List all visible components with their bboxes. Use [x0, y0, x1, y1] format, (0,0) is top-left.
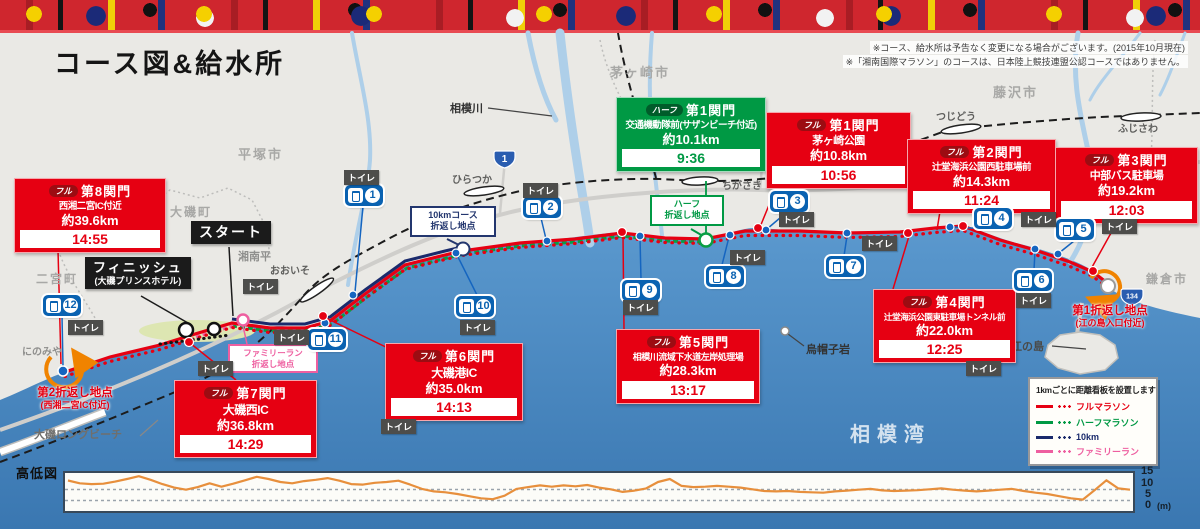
water-cup-icon — [977, 211, 992, 226]
area-label-ninomiya-kana: にのみや — [22, 343, 62, 358]
area-label-sagami-bay: 相模湾 — [850, 418, 931, 447]
finish-marker: フィニッシュ (大磯プリンスホテル) — [85, 257, 191, 289]
checkpoint-box-full-3: フル第3関門 中部バス駐車場 約19.2km 12:03 — [1055, 147, 1198, 224]
checkpoint-box-full-2: フル第2関門 辻堂海浜公園西駐車場前 約14.3km 11:24 — [907, 139, 1056, 214]
water-station-7: 7 — [826, 256, 864, 277]
water-cup-icon — [1017, 273, 1032, 288]
city-label-fujisawa: 藤沢市 — [993, 82, 1038, 101]
course-type-badge: フル — [49, 185, 78, 197]
turnaround-box-family: ファミリーラン折返し地点 — [228, 344, 318, 373]
checkpoint-box-half-1: ハーフ第1関門 交通機動隊前(サザンビーチ付近) 約10.1km 9:36 — [616, 97, 766, 172]
toilet-label: トイレ — [1021, 212, 1056, 227]
checkpoint-box-full-8: フル第8関門 西湘二宮IC付近 約39.6km 14:55 — [14, 178, 166, 253]
legend-item-10km: 10km — [1036, 432, 1150, 442]
elevation-plot — [65, 473, 1133, 511]
toilet-label: トイレ — [730, 250, 765, 265]
checkpoint-box-full-5: フル第5関門 相模川流域下水道左岸処理場 約28.3km 13:17 — [616, 329, 760, 404]
water-cup-icon — [46, 298, 61, 313]
start-marker: スタート — [191, 221, 271, 244]
water-cup-icon — [1059, 222, 1074, 237]
cutoff-time: 12:25 — [879, 340, 1010, 358]
elevation-tick-15: 15 — [1141, 465, 1153, 477]
water-station-11: 11 — [308, 329, 346, 350]
toilet-label: トイレ — [862, 236, 897, 251]
svg-text:134: 134 — [1126, 294, 1138, 301]
town-label-ninomiya: 二宮町 — [36, 270, 78, 287]
water-cup-icon — [311, 332, 326, 347]
elevation-chart — [63, 471, 1135, 513]
toilet-label: トイレ — [779, 212, 814, 227]
line-swatch — [1036, 405, 1053, 408]
toilet-label: トイレ — [1016, 293, 1051, 308]
city-label-chigasaki: 茅ヶ崎市 — [610, 62, 670, 81]
legend-item-half: ハーフマラソン — [1036, 416, 1150, 429]
legend: 1kmごとに距離看板を設置します フルマラソン ハーフマラソン 10km ファミ… — [1028, 377, 1158, 466]
course-type-badge: フル — [1085, 154, 1114, 166]
water-station-8: 8 — [706, 266, 744, 287]
water-cup-icon — [625, 283, 640, 298]
cutoff-time: 13:17 — [622, 381, 754, 399]
course-type-badge: フル — [647, 336, 676, 348]
water-cup-icon — [829, 259, 844, 274]
dots-swatch — [1057, 421, 1072, 424]
water-cup-icon — [709, 269, 724, 284]
water-station-4: 4 — [974, 208, 1012, 229]
water-station-1: 1 — [345, 185, 383, 206]
water-cup-icon — [459, 299, 474, 314]
water-station-10: 10 — [456, 296, 494, 317]
toilet-label: トイレ — [381, 419, 416, 434]
turnaround-box-10km: 10kmコース折返し地点 — [410, 206, 496, 237]
station-label-oiso: おおいそ — [270, 262, 310, 277]
water-station-5: 5 — [1056, 219, 1094, 240]
toilet-label: トイレ — [243, 279, 278, 294]
dots-swatch — [1057, 436, 1072, 439]
checkpoint-box-full-6: フル第6関門 大磯港IC 約35.0km 14:13 — [385, 343, 523, 421]
area-label-shonandaira: 湘南平 — [238, 248, 271, 264]
checkpoint-box-full-4: フル第4関門 辻堂海浜公園東駐車場トンネル前 約22.0km 12:25 — [873, 289, 1016, 363]
toilet-label: トイレ — [274, 330, 309, 345]
note-line-1: ※コース、給水所は予告なく変更になる場合がございます。(2015年10月現在) — [870, 41, 1188, 54]
course-type-badge: フル — [204, 387, 233, 399]
elevation-tick-0: 0 — [1145, 499, 1151, 511]
line-swatch — [1036, 436, 1053, 439]
turnaround-label-2: 第2折返し地点(西湘二宮IC付近) — [10, 386, 140, 412]
course-type-badge: フル — [797, 119, 826, 131]
city-label-kamakura: 鎌倉市 — [1146, 270, 1188, 287]
svg-text:1: 1 — [502, 154, 508, 165]
water-cup-icon — [773, 194, 788, 209]
elevation-line — [68, 476, 1130, 499]
dots-swatch — [1057, 405, 1072, 408]
toilet-label: トイレ — [344, 170, 379, 185]
checkpoint-box-full-1: フル第1関門 茅ヶ崎公園 約10.8km 10:56 — [766, 112, 911, 189]
note-line-2: ※「湘南国際マラソン」のコースは、日本陸上競技連盟公認コースではありません。 — [843, 55, 1188, 68]
water-station-3: 3 — [770, 191, 808, 212]
line-swatch — [1036, 450, 1053, 453]
water-station-12: 12 — [43, 295, 81, 316]
line-swatch — [1036, 421, 1053, 424]
page-title: コース図&給水所 — [54, 42, 285, 81]
course-type-badge: フル — [903, 296, 932, 308]
cutoff-time: 14:13 — [391, 398, 517, 416]
checkpoint-box-full-7: フル第7関門 大磯西IC 約36.8km 14:29 — [174, 380, 317, 458]
water-station-9: 9 — [622, 280, 660, 301]
station-label-tsujido: つじどう — [936, 108, 976, 123]
river-label-sagamigawa: 相模川 — [450, 100, 483, 116]
course-type-badge: フル — [413, 350, 442, 362]
legend-item-family: ファミリーラン — [1036, 445, 1150, 458]
dots-swatch — [1057, 450, 1072, 453]
cutoff-time: 10:56 — [772, 166, 905, 184]
town-label-oiso: 大磯町 — [170, 203, 212, 220]
turnaround-box-half: ハーフ折返し地点 — [650, 195, 724, 226]
toilet-label: トイレ — [623, 300, 658, 315]
elevation-chart-title: 高低図 — [16, 463, 58, 482]
city-label-hiratsuka: 平塚市 — [238, 144, 283, 163]
toilet-label: トイレ — [460, 320, 495, 335]
station-label-hiratsuka: ひらつか — [452, 171, 492, 186]
toilet-label: トイレ — [198, 361, 233, 376]
legend-item-full: フルマラソン — [1036, 400, 1150, 413]
water-station-2: 2 — [523, 197, 561, 218]
toilet-label: トイレ — [966, 361, 1001, 376]
water-station-6: 6 — [1014, 270, 1052, 291]
turnaround-label-1: 第1折返し地点(江の島入口付近) — [1040, 304, 1180, 330]
legend-title: 1kmごとに距離看板を設置します — [1036, 384, 1150, 396]
station-label-chigasaki: ちがさき — [722, 177, 762, 192]
cutoff-time: 9:36 — [622, 149, 760, 167]
toilet-label: トイレ — [523, 183, 558, 198]
station-label-fujisawa: ふじさわ — [1118, 120, 1158, 135]
cutoff-time: 12:03 — [1061, 201, 1192, 219]
area-label-eboshiiwa: 烏帽子岩 — [806, 341, 850, 357]
cutoff-time: 11:24 — [913, 191, 1050, 209]
course-map-page: 1 134 コース図&給水所 ※コース、給水所は予告なく変更になる場合がございま… — [0, 0, 1200, 529]
area-label-oiso-long-beach: 大磯ロングビーチ — [34, 426, 122, 442]
toilet-label: トイレ — [68, 320, 103, 335]
elevation-unit: (m) — [1157, 501, 1171, 511]
toilet-label: トイレ — [1102, 219, 1137, 234]
water-cup-icon — [348, 188, 363, 203]
course-type-badge: フル — [940, 146, 969, 158]
cutoff-time: 14:29 — [180, 435, 311, 453]
cutoff-time: 14:55 — [20, 230, 160, 248]
course-type-badge: ハーフ — [646, 104, 683, 116]
water-cup-icon — [526, 200, 541, 215]
